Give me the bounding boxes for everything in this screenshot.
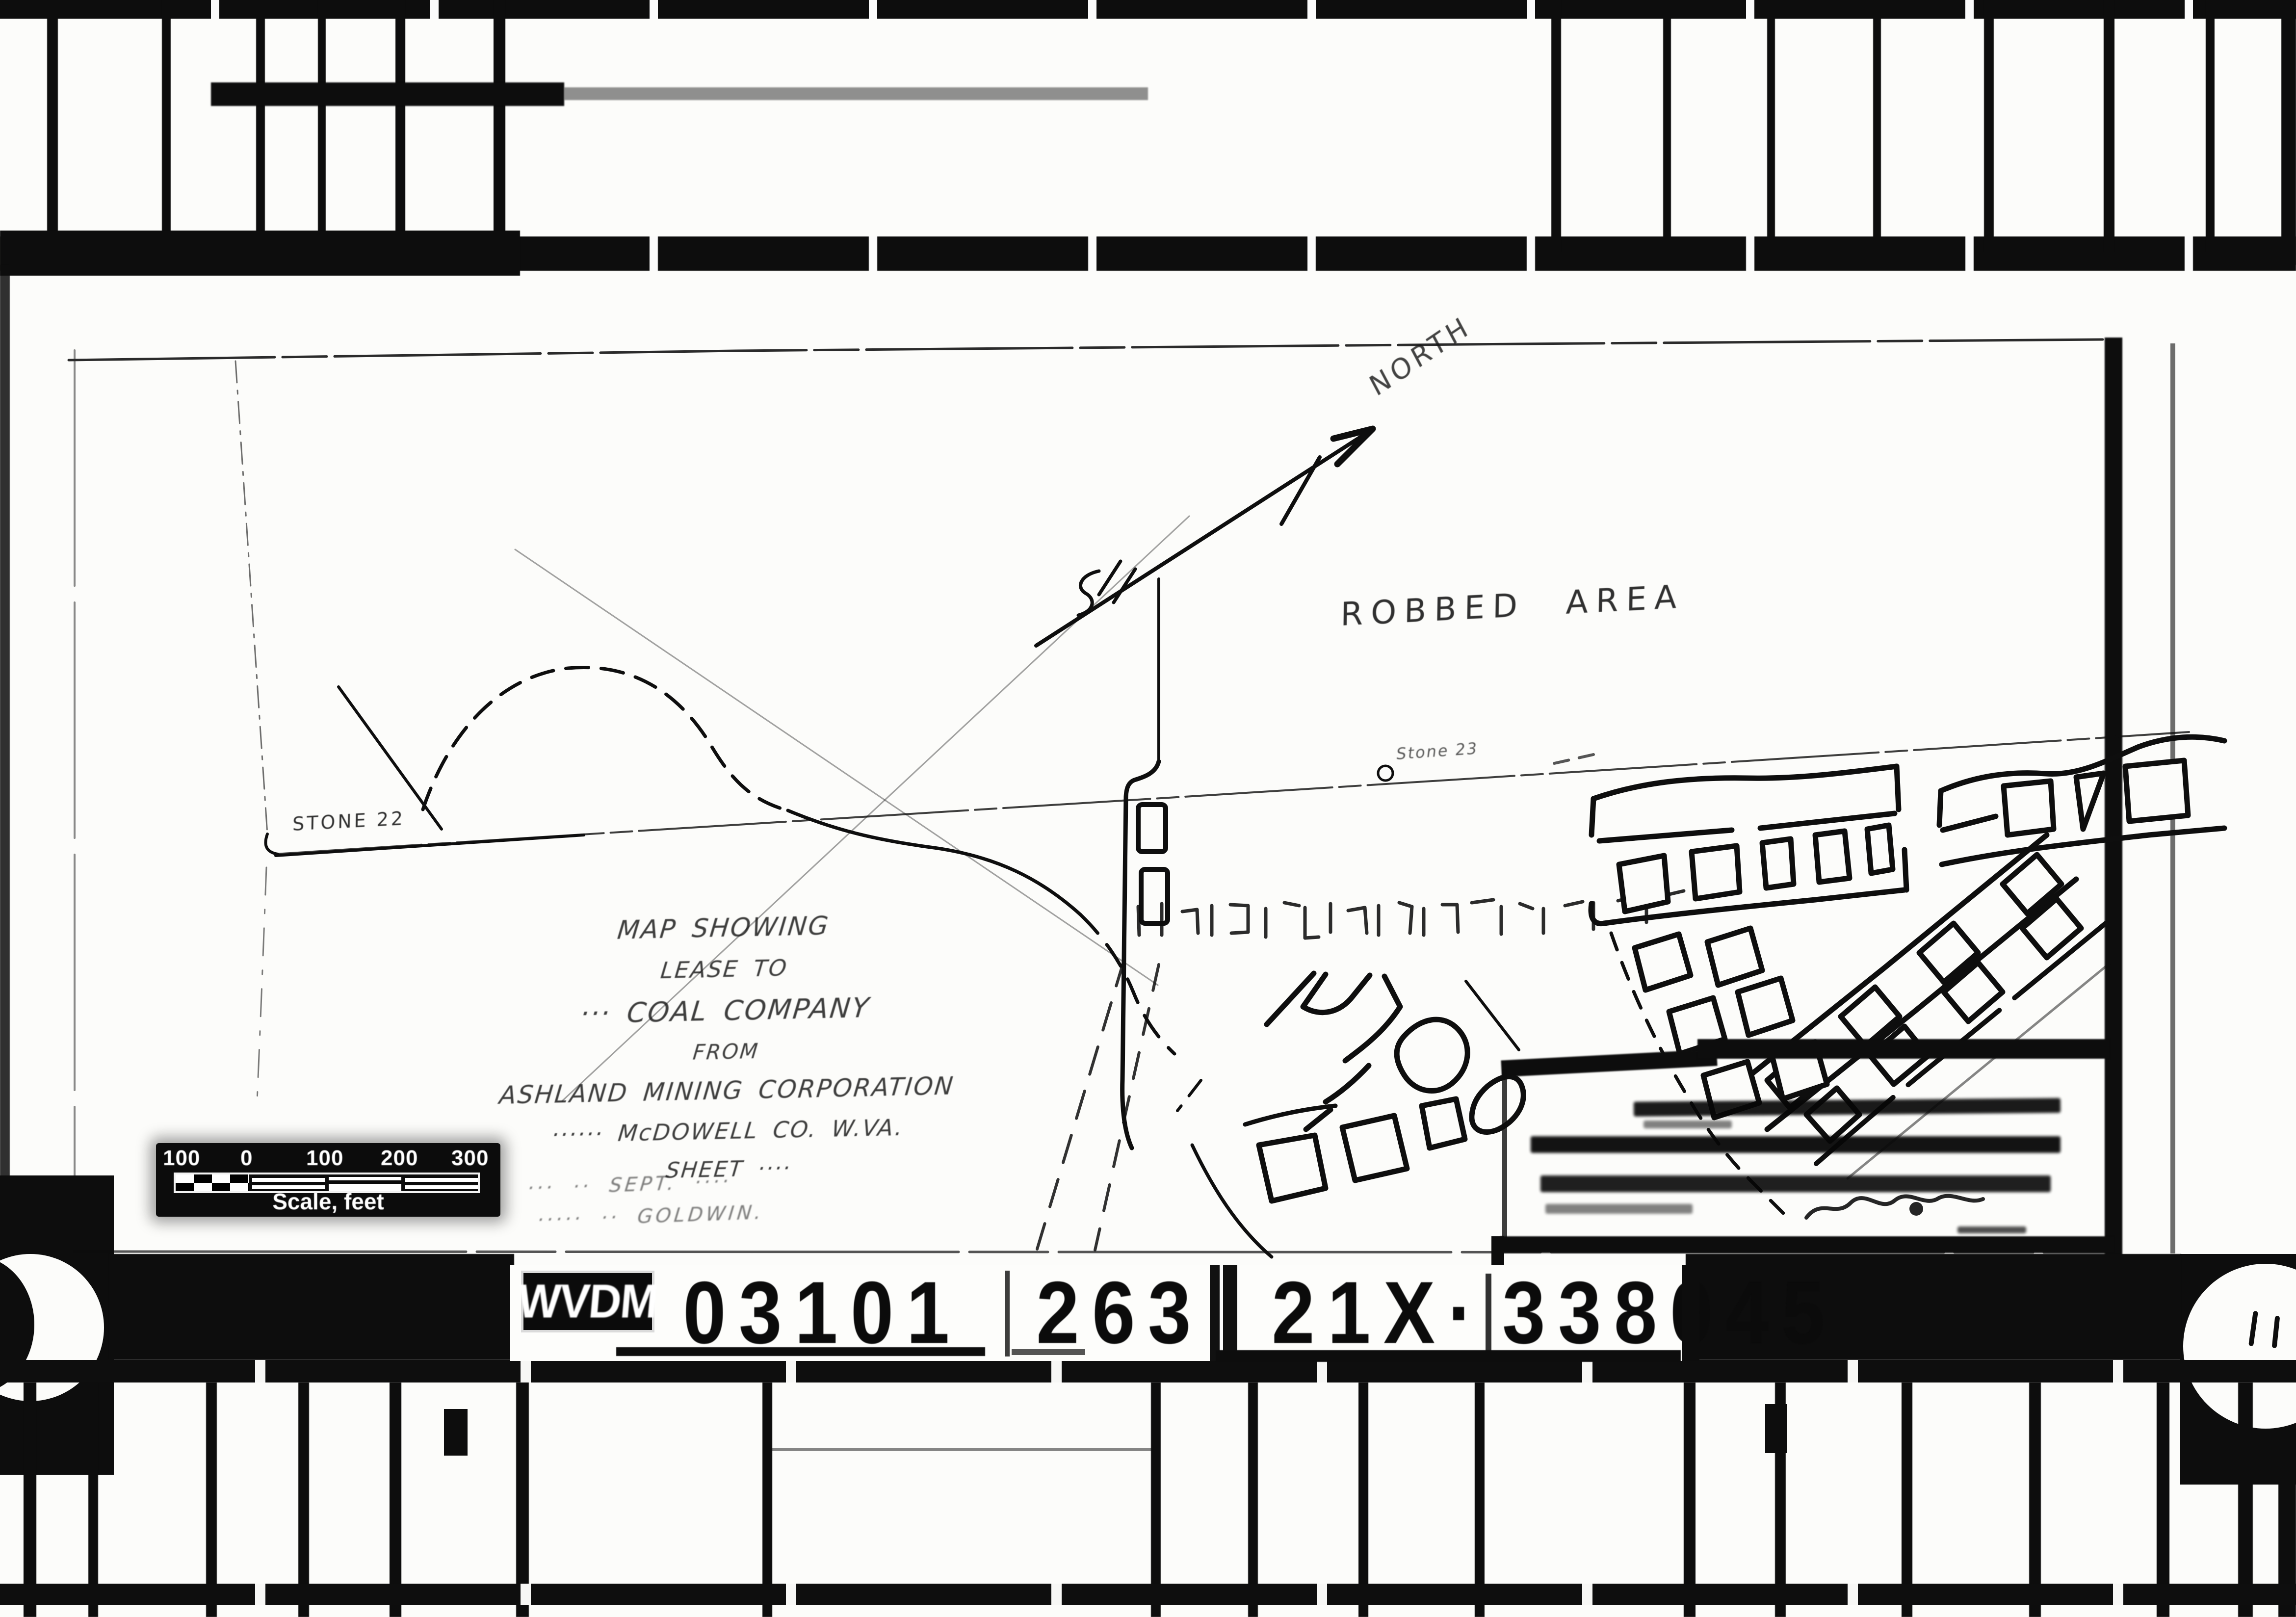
- cert-illegible-line: [1545, 1204, 1693, 1214]
- frame-number: 338045: [1502, 1260, 1837, 1365]
- checker-row: [176, 1174, 249, 1183]
- scale-tick-label: 300: [451, 1146, 489, 1171]
- certification-signature: [1806, 1196, 1983, 1218]
- robbed-area-fringe: [1138, 891, 1684, 938]
- mine-entry-roads: [1037, 959, 1159, 1250]
- scale-caption: Scale, feet: [156, 1188, 500, 1215]
- title-line: FROM: [455, 1034, 997, 1069]
- id-strip-separator: [1005, 1271, 1010, 1356]
- cert-left-border: [1502, 1069, 1507, 1241]
- id-strip-underline: [616, 1347, 985, 1356]
- id-strip-separator-thick: [1210, 1265, 1237, 1361]
- map-title-block: MAP SHOWING LEASE TO ··· COAL COMPANY FR…: [453, 908, 999, 1200]
- frame-number: 21X·: [1272, 1260, 1487, 1365]
- title-line: ······ McDOWELL CO. W.VA.: [457, 1112, 999, 1149]
- map-line-art: [0, 0, 2296, 1617]
- title-line: LEASE TO: [453, 950, 995, 988]
- scale-bar: 100 0 100 200 300 Scale, feet: [156, 1143, 500, 1217]
- scale-tick-label: 0: [240, 1146, 253, 1171]
- reel-code-badge: WVDM: [521, 1271, 654, 1332]
- id-strip-separator: [1486, 1274, 1491, 1356]
- cert-illegible-line: [1644, 1121, 1732, 1128]
- id-strip-underline: [1216, 1350, 1681, 1362]
- cert-caption-smudge: [1957, 1226, 2026, 1233]
- small-mine-workings: [1177, 973, 1523, 1257]
- reel-code: WVDM: [516, 1275, 660, 1329]
- pillar: [1138, 805, 1166, 852]
- cert-top-band: [1697, 1039, 2110, 1059]
- microfilm-scan: NORTH ROBBED AREA STONE 22 Stone 23 MAP …: [0, 0, 2296, 1617]
- sheet-border: [69, 339, 2105, 1252]
- scale-tick-label: 100: [306, 1146, 343, 1171]
- id-strip-underline: [1012, 1349, 1085, 1355]
- cert-illegible-line: [1540, 1175, 2051, 1192]
- scale-tick-label: 100: [163, 1146, 200, 1171]
- title-line: ··· COAL COMPANY: [454, 989, 996, 1032]
- title-line: ASHLAND MINING CORPORATION: [456, 1070, 998, 1110]
- id-strip-separator-thick: [1682, 1265, 1699, 1361]
- scale-tick-label: 200: [381, 1146, 418, 1171]
- microfilm-id-strip: WVDM 03101 263 21X· 338045: [510, 1265, 1688, 1361]
- cert-bottom-band: [1500, 1236, 2113, 1253]
- cert-illegible-line: [1531, 1136, 2061, 1153]
- pillar: [1141, 869, 1168, 923]
- stone-23-marker: [1378, 766, 1393, 781]
- north-arrow-icon: [1036, 429, 1373, 646]
